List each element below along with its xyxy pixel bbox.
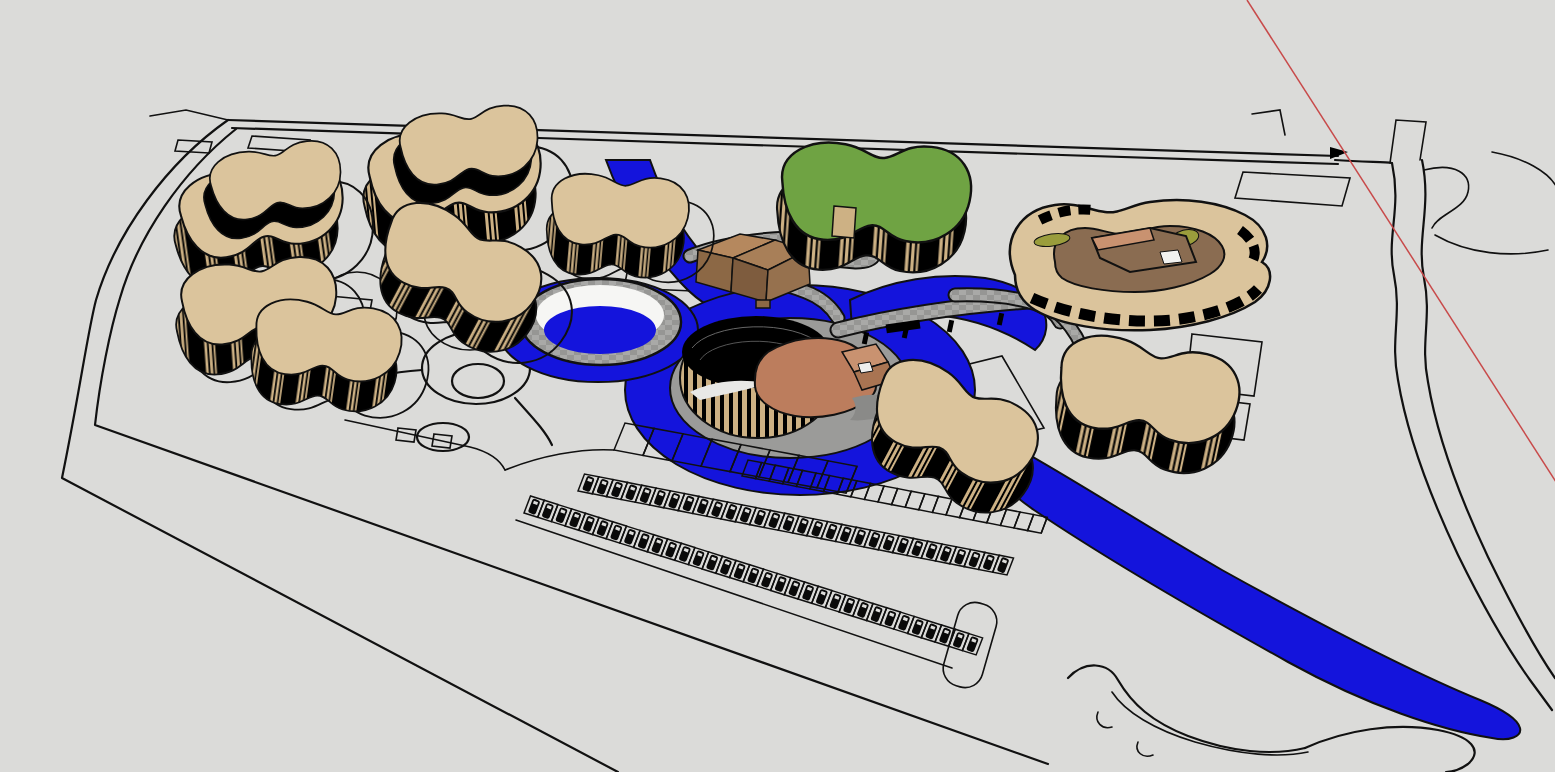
model-viewport[interactable] xyxy=(0,0,1555,772)
circular-pool xyxy=(521,279,681,365)
pavilion-step xyxy=(756,300,770,308)
skylight xyxy=(858,362,873,373)
model-stage xyxy=(0,0,1555,772)
green-building-core xyxy=(832,206,856,238)
ring-complex xyxy=(1010,200,1270,330)
pool-water xyxy=(544,306,656,354)
courtyard-skylight xyxy=(1160,250,1182,264)
